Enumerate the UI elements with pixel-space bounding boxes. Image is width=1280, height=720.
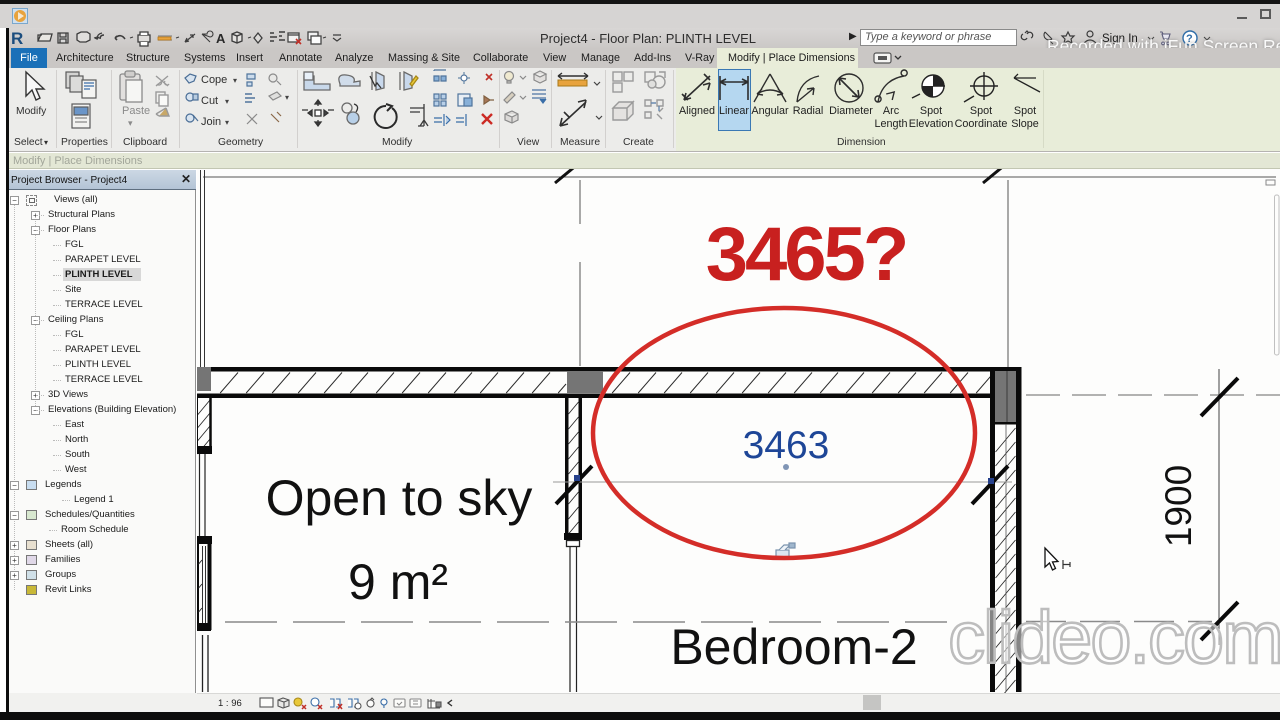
svg-text:▾: ▾ xyxy=(225,97,229,106)
svg-text:1900: 1900 xyxy=(1158,465,1199,547)
svg-text:3463: 3463 xyxy=(743,424,830,467)
svg-text:▾: ▾ xyxy=(285,93,289,102)
svg-text:Open to sky: Open to sky xyxy=(266,470,533,526)
svg-text:Bedroom-2: Bedroom-2 xyxy=(670,619,917,675)
svg-text:Cut: Cut xyxy=(201,95,218,107)
svg-text:Join: Join xyxy=(201,116,221,128)
svg-text:A: A xyxy=(216,31,226,46)
svg-text:▾: ▾ xyxy=(225,118,229,127)
svg-text:▾: ▾ xyxy=(128,118,133,128)
svg-text:▾: ▾ xyxy=(233,76,237,85)
svg-text:9 m²: 9 m² xyxy=(348,554,448,610)
svg-text:Cope: Cope xyxy=(201,74,227,86)
svg-text:3465?: 3465? xyxy=(706,212,907,297)
svg-text:clideo.com: clideo.com xyxy=(948,596,1280,679)
svg-text:Paste: Paste xyxy=(122,105,150,117)
